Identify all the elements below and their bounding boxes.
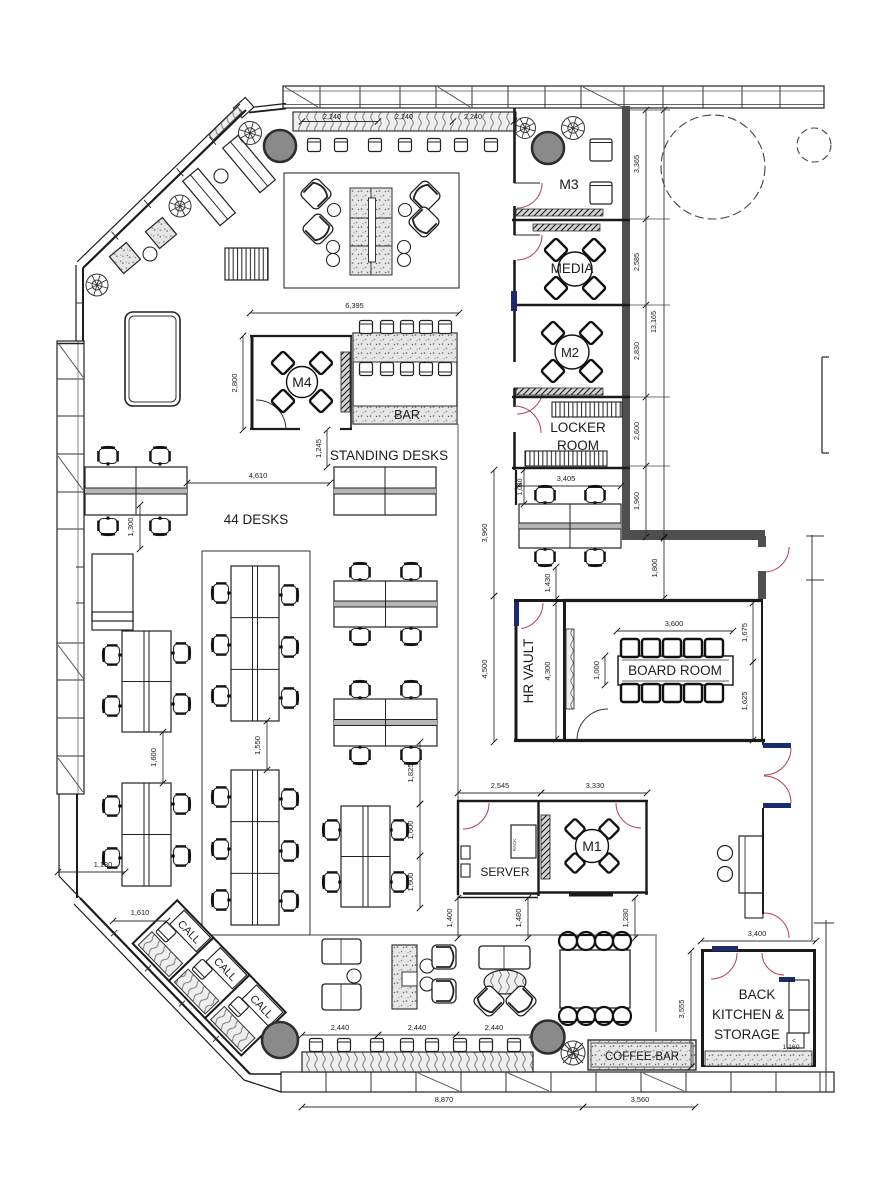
svg-text:1,675: 1,675 (740, 623, 749, 642)
svg-text:1,245: 1,245 (314, 439, 323, 458)
svg-text:1,160: 1,160 (782, 1044, 799, 1051)
svg-text:M3: M3 (559, 176, 579, 192)
svg-text:1,400: 1,400 (445, 908, 454, 927)
svg-text:1,600: 1,600 (406, 872, 415, 891)
svg-text:6,395: 6,395 (345, 301, 364, 310)
svg-text:1,480: 1,480 (514, 908, 523, 927)
svg-text:2,800: 2,800 (230, 373, 239, 392)
svg-text:M4: M4 (292, 374, 312, 390)
svg-text:2,600: 2,600 (632, 422, 641, 440)
svg-text:3,330: 3,330 (586, 781, 605, 790)
svg-text:4,610: 4,610 (249, 471, 268, 480)
svg-text:STANDING DESKS: STANDING DESKS (330, 448, 448, 463)
svg-text:2,240: 2,240 (395, 112, 413, 121)
svg-text:3,600: 3,600 (665, 619, 684, 628)
svg-text:1,180: 1,180 (94, 860, 113, 869)
svg-text:3,365: 3,365 (632, 155, 641, 173)
svg-text:4,500: 4,500 (480, 659, 489, 678)
svg-text:3,960: 3,960 (480, 523, 489, 542)
svg-text:1,550: 1,550 (253, 736, 262, 755)
svg-text:KITCHEN &: KITCHEN & (712, 1007, 784, 1022)
svg-text:13,165: 13,165 (649, 311, 658, 333)
svg-text:BOARD ROOM: BOARD ROOM (628, 663, 722, 678)
svg-text:M1: M1 (582, 838, 602, 854)
svg-text:1,280: 1,280 (621, 908, 630, 927)
svg-text:2,240: 2,240 (464, 112, 482, 121)
svg-text:3,560: 3,560 (631, 1095, 650, 1104)
svg-text:ROOM: ROOM (557, 438, 599, 453)
svg-text:3,400: 3,400 (748, 929, 767, 938)
svg-text:2,585: 2,585 (632, 253, 641, 271)
svg-text:44 DESKS: 44 DESKS (224, 512, 289, 527)
svg-text:2,240: 2,240 (323, 112, 341, 121)
svg-text:RACK: RACK (512, 839, 517, 852)
svg-text:1,960: 1,960 (632, 492, 641, 510)
svg-text:4,300: 4,300 (543, 661, 552, 680)
svg-text:1,020: 1,020 (517, 478, 524, 495)
svg-text:1,610: 1,610 (131, 908, 150, 917)
svg-text:1,600: 1,600 (406, 820, 415, 839)
svg-text:1,625: 1,625 (740, 691, 749, 710)
svg-text:LOCKER: LOCKER (550, 420, 606, 435)
svg-text:1,430: 1,430 (543, 573, 552, 592)
svg-text:HR VAULT: HR VAULT (521, 639, 536, 704)
svg-text:BACK: BACK (739, 987, 776, 1002)
svg-text:1,825: 1,825 (406, 763, 415, 782)
svg-text:2,440: 2,440 (331, 1023, 350, 1032)
svg-text:COFFEE-BAR: COFFEE-BAR (605, 1051, 679, 1063)
svg-text:3,405: 3,405 (557, 474, 576, 483)
svg-text:1,300: 1,300 (126, 517, 135, 536)
svg-text:2,440: 2,440 (408, 1023, 427, 1032)
svg-text:1,800: 1,800 (650, 558, 659, 577)
svg-text:3,555: 3,555 (677, 999, 686, 1018)
svg-text:SERVER: SERVER (480, 865, 529, 879)
svg-text:2,545: 2,545 (491, 781, 510, 790)
svg-text:1,600: 1,600 (149, 748, 158, 767)
svg-text:8,870: 8,870 (435, 1095, 454, 1104)
svg-text:STORAGE: STORAGE (714, 1027, 780, 1042)
svg-text:2,440: 2,440 (485, 1023, 504, 1032)
svg-text:2,830: 2,830 (632, 342, 641, 360)
svg-text:BAR: BAR (394, 408, 420, 422)
svg-text:1,000: 1,000 (592, 661, 601, 680)
svg-text:MEDIA: MEDIA (551, 261, 594, 276)
svg-text:M2: M2 (561, 345, 579, 360)
